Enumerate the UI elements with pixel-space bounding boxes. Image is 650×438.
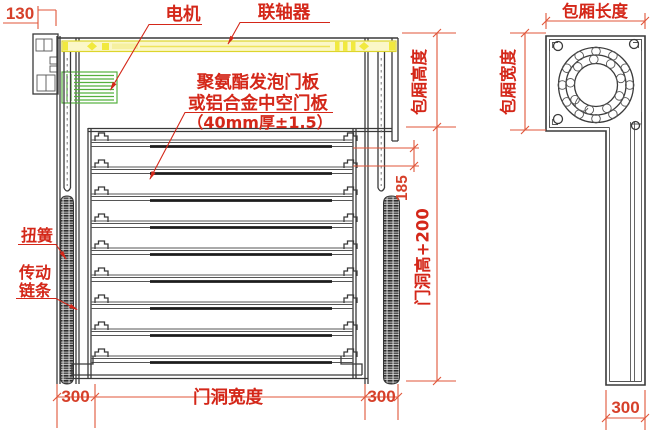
dim-box-width-group: 包厢宽度 [498,29,546,134]
label-panel-line3: （40mm厚±1.5） [187,113,332,132]
dim-185: 185 [394,175,411,201]
label-panel-line1: 聚氨酯发泡门板 [196,72,320,93]
dim-300-rail: 300 [611,398,639,417]
label-torsion-spring-group: 扭簧 [18,226,67,260]
rail-inner-lines [631,122,635,382]
label-torsion-spring: 扭簧 [21,226,53,245]
dim-door-height: 门洞高+200 [413,208,433,306]
dim-bottom-group: 300 门洞宽度 300 [53,384,402,428]
dim-300-left: 300 [61,387,89,406]
door-slats [91,133,357,363]
label-drive-chain-1: 传动 [18,263,51,282]
dim-box-length: 包厢长度 [562,1,629,21]
label-panel-line2: 或铝合金中空门板 [188,93,328,114]
dim-box-width: 包厢宽度 [498,49,518,116]
dim-door-width: 门洞宽度 [193,387,263,408]
dim-130: 130 [3,4,56,29]
roller-shutter-technical-drawing: 130 电机 联轴器 聚氨酯发泡门板 或铝合金中空门板 （40mm厚±1.5） … [0,0,650,438]
bottom-bar [66,356,368,379]
label-panel-group: 聚氨酯发泡门板 或铝合金中空门板 （40mm厚±1.5） [150,72,334,180]
side-view [546,36,645,385]
label-drive-chain-2: 链条 [19,281,52,300]
dim-height-group: 包厢高度 门洞高+200 [402,29,456,385]
dim-130-value: 130 [6,4,34,23]
dim-box-height: 包厢高度 [409,49,429,116]
dim-300-right: 300 [367,387,395,406]
mounting-plate [33,34,58,94]
dim-rail-300-group: 300 [602,390,649,430]
torsion-spring-chain-right [378,52,400,384]
curtain-coil [558,47,634,123]
label-motor: 电机 [166,4,201,25]
dim-box-length-group: 包厢长度 [542,1,649,29]
label-coupling: 联轴器 [258,2,311,23]
dim-185-group: 185 [353,140,419,201]
